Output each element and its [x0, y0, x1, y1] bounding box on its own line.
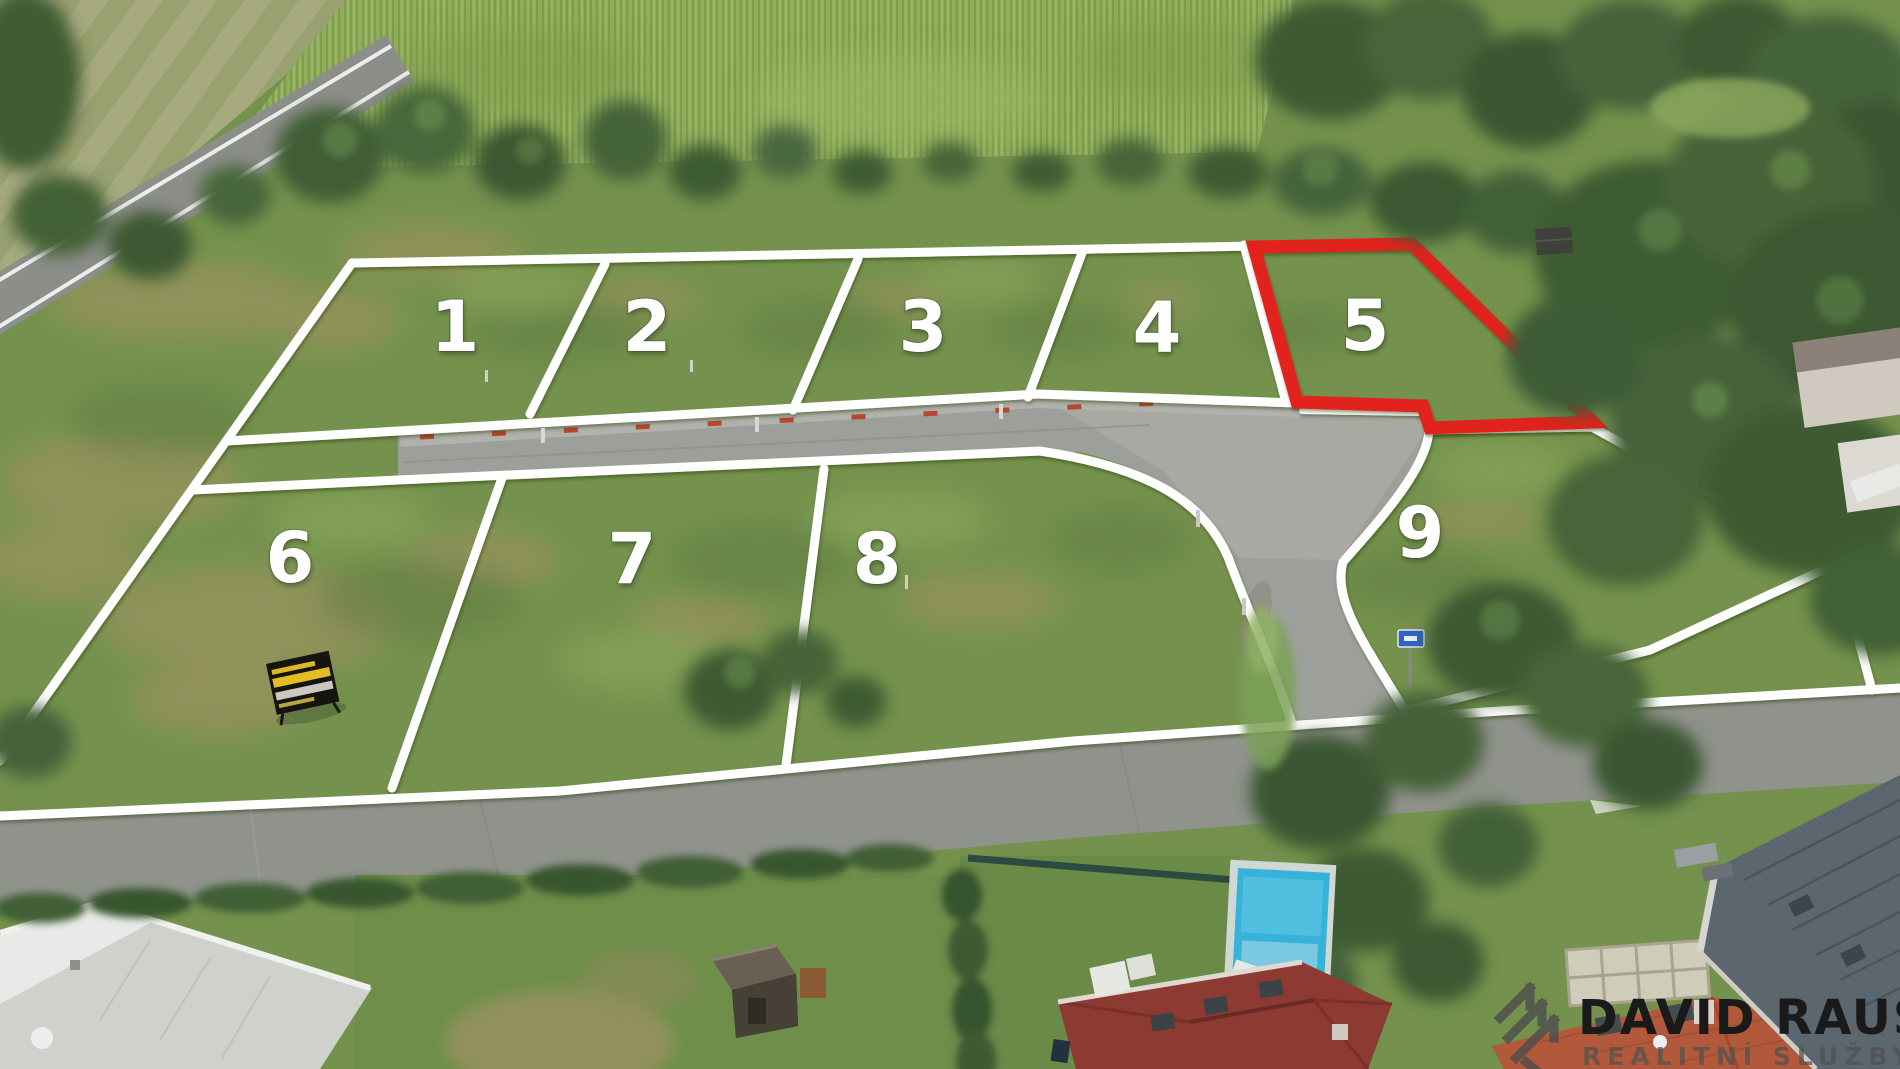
plot-number-1: 1: [431, 286, 480, 368]
pergola: [1566, 940, 1710, 1006]
planter-box: [800, 968, 826, 998]
plot-number-7: 7: [608, 518, 657, 600]
waste-bin: [1051, 1039, 1071, 1063]
aerial-photo: 1 2 3 4 5 6 7 8 9 DAVID RAUS REALITNÍ SL…: [0, 0, 1900, 1069]
plot-number-8: 8: [853, 518, 902, 600]
plot-number-9: 9: [1396, 492, 1445, 574]
plot-number-3: 3: [899, 286, 948, 368]
plot-number-4: 4: [1133, 287, 1182, 369]
plot-number-2: 2: [623, 286, 672, 368]
plot-number-5: 5: [1341, 285, 1390, 367]
plot-number-6: 6: [266, 517, 315, 599]
scene-svg: 1 2 3 4 5 6 7 8 9: [0, 0, 1900, 1069]
